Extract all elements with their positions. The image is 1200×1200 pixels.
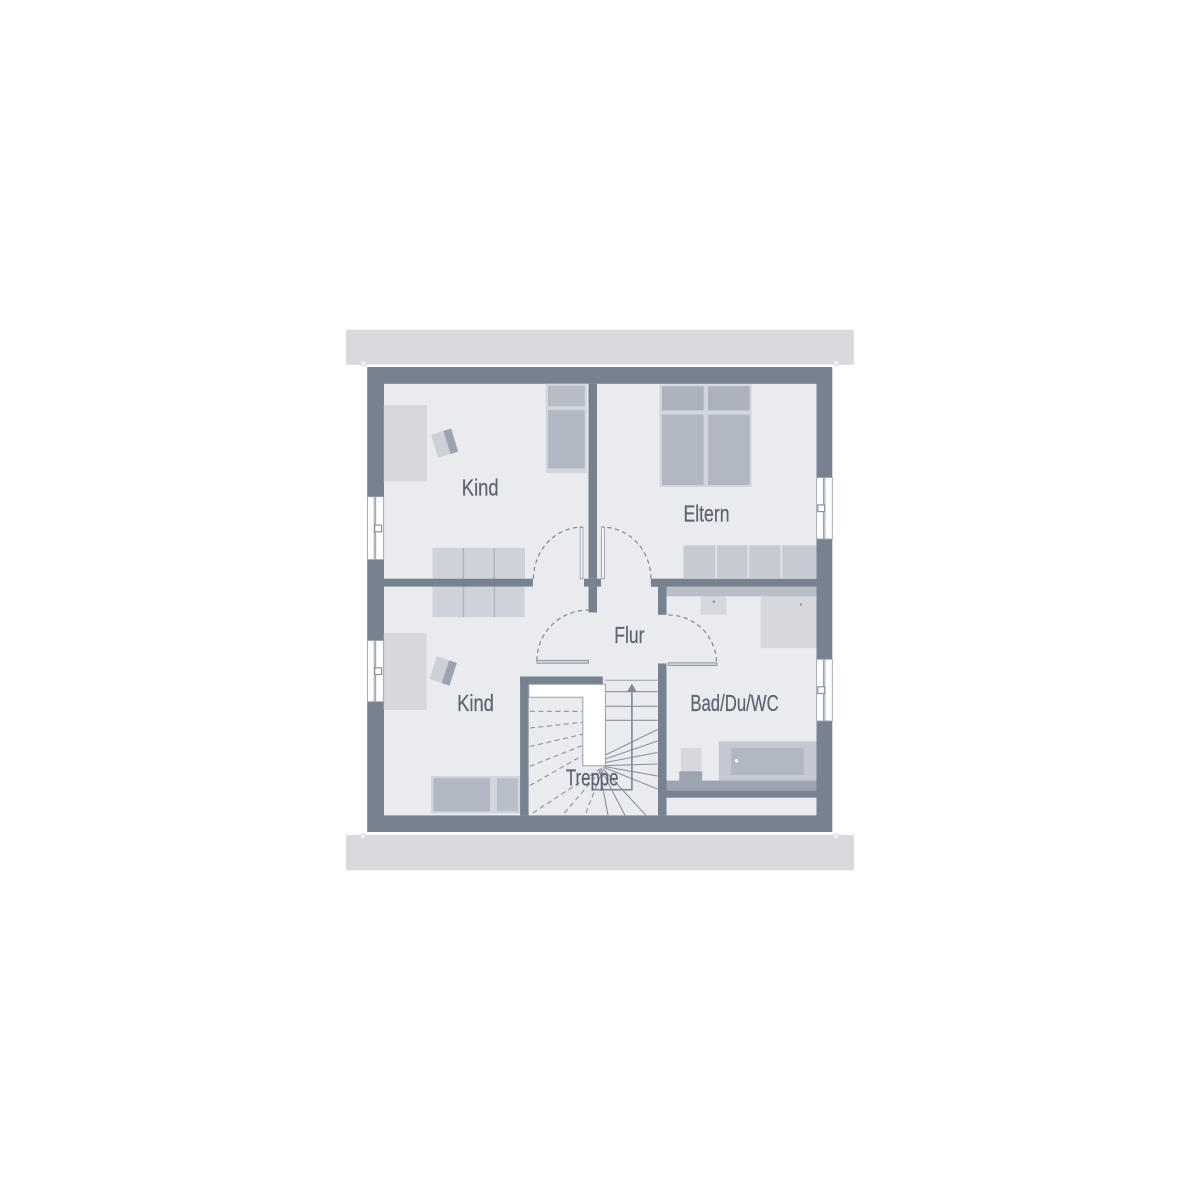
svg-text:Eltern: Eltern	[684, 501, 730, 527]
svg-text:Bad/Du/WC: Bad/Du/WC	[690, 692, 778, 717]
svg-text:Treppe: Treppe	[566, 766, 619, 791]
svg-text:Kind: Kind	[457, 691, 494, 716]
svg-text:Kind: Kind	[462, 476, 499, 501]
svg-text:Flur: Flur	[614, 623, 644, 649]
